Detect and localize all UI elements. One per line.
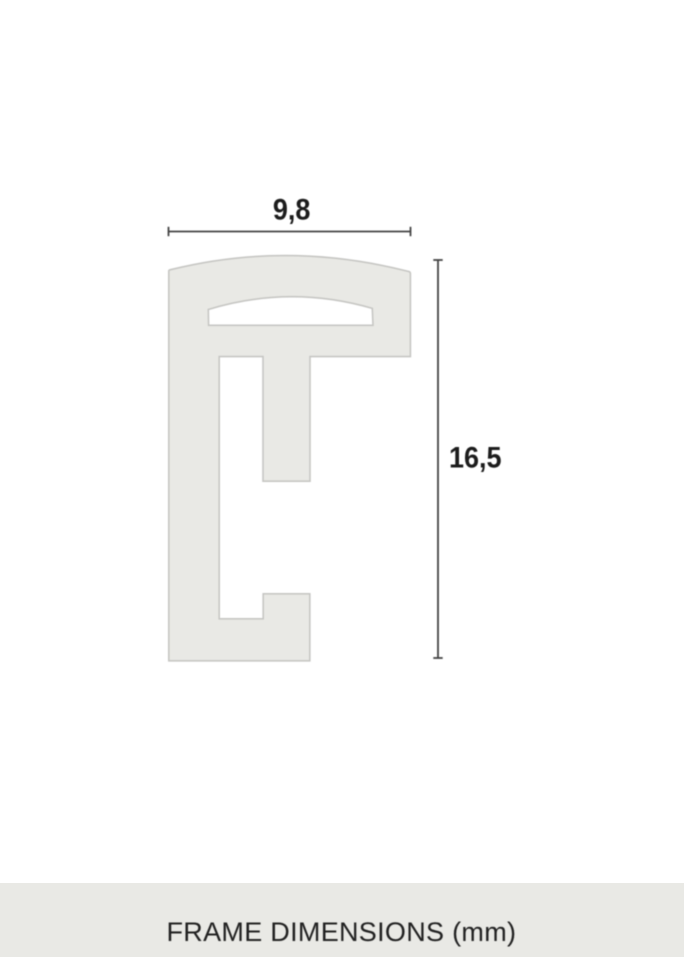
svg-text:16,5: 16,5	[449, 441, 502, 475]
svg-text:9,8: 9,8	[273, 193, 311, 227]
svg-text:FRAME DIMENSIONS (mm): FRAME DIMENSIONS (mm)	[167, 917, 517, 947]
